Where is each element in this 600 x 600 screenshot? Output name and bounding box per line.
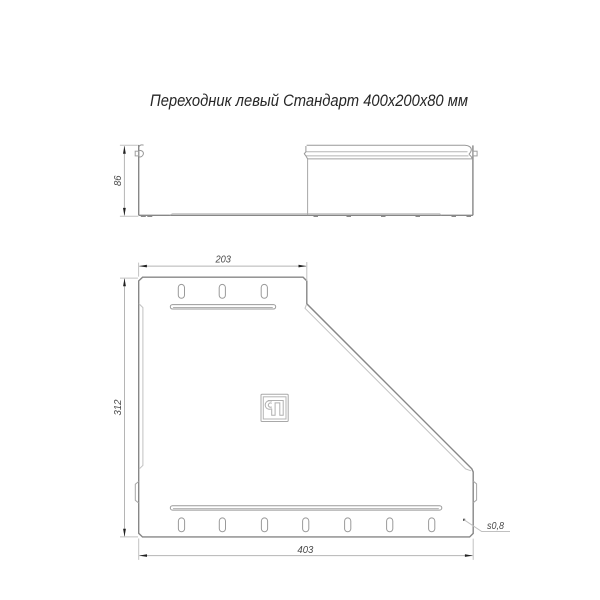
svg-text:203: 203: [215, 254, 232, 266]
svg-text:403: 403: [297, 544, 313, 556]
svg-text:s0,8: s0,8: [487, 521, 504, 532]
svg-text:86: 86: [112, 175, 124, 186]
svg-text:312: 312: [112, 399, 124, 415]
svg-text:Переходник левый Стандарт 400х: Переходник левый Стандарт 400х200х80 мм: [150, 91, 468, 110]
